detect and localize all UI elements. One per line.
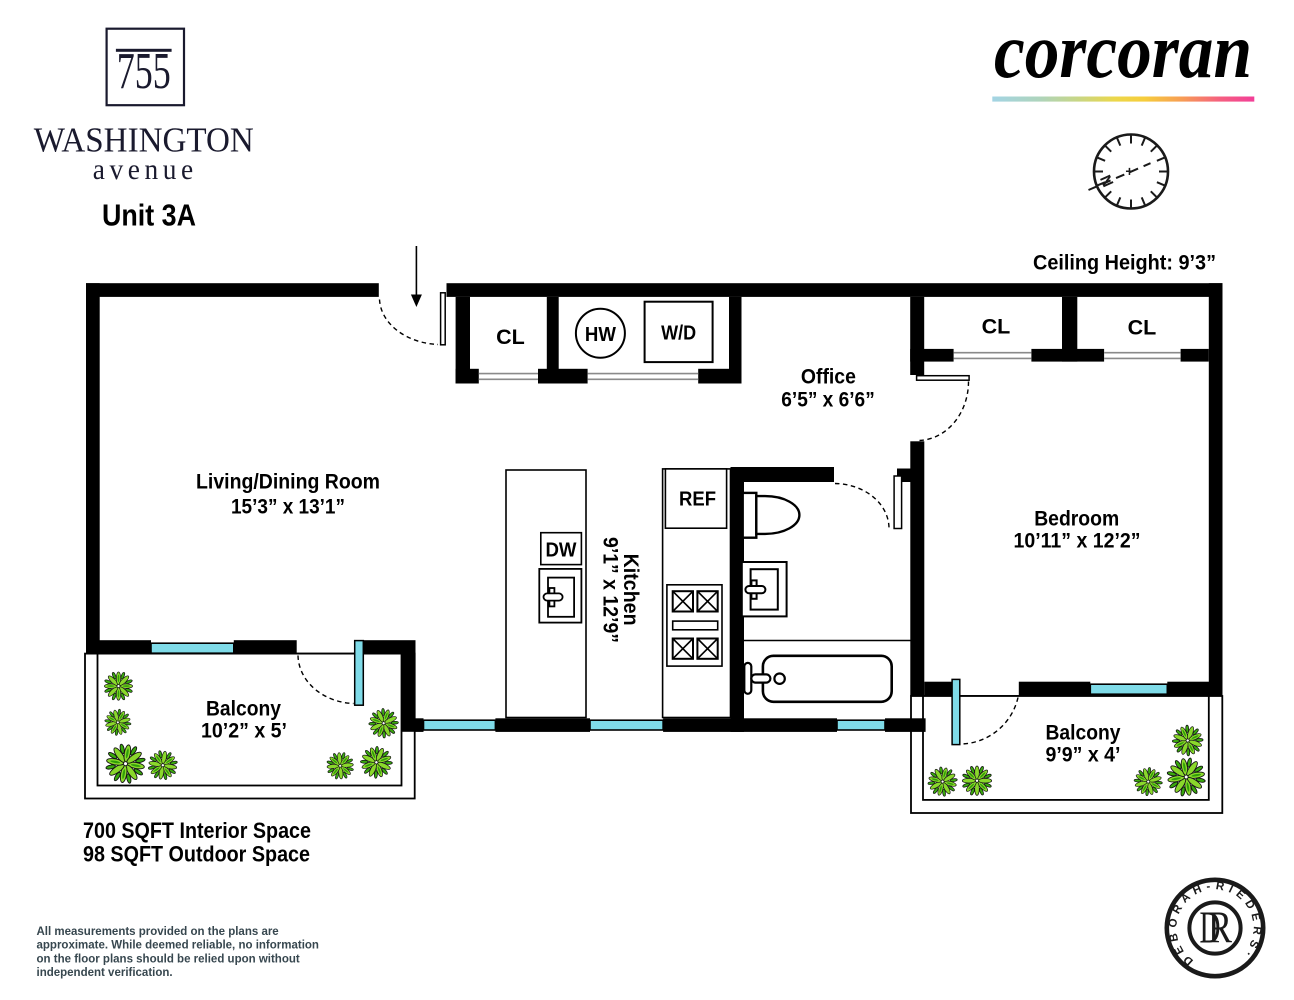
svg-text:Living/Dining Room: Living/Dining Room — [196, 470, 380, 494]
svg-text:10’2” x 5’: 10’2” x 5’ — [201, 719, 287, 743]
svg-text:All measurements provided on t: All measurements provided on the plans a… — [37, 926, 279, 938]
svg-text:CL: CL — [982, 315, 1011, 339]
svg-text:6’5” x 6’6”: 6’5” x 6’6” — [781, 388, 875, 412]
svg-text:corcoran: corcoran — [994, 7, 1252, 94]
svg-text:755: 755 — [117, 43, 171, 100]
svg-text:Balcony: Balcony — [1046, 721, 1121, 745]
svg-text:Balcony: Balcony — [206, 697, 281, 721]
svg-text:9’9” x 4’: 9’9” x 4’ — [1046, 743, 1121, 767]
svg-text:Ceiling Height: 9’3”: Ceiling Height: 9’3” — [1033, 251, 1216, 275]
svg-text:10’11” x 12’2”: 10’11” x 12’2” — [1014, 529, 1141, 553]
svg-text:REF: REF — [679, 489, 716, 511]
svg-text:W/D: W/D — [661, 322, 696, 345]
svg-text:DW: DW — [546, 539, 578, 562]
svg-text:R: R — [1208, 903, 1232, 953]
svg-text:avenue: avenue — [93, 153, 198, 186]
svg-text:9’1” x 12’9”: 9’1” x 12’9” — [599, 537, 623, 643]
svg-text:98 SQFT Outdoor Space: 98 SQFT Outdoor Space — [83, 842, 310, 867]
svg-text:Office: Office — [801, 365, 856, 389]
svg-text:on the floor plans should be r: on the floor plans should be relied upon… — [37, 953, 300, 965]
svg-text:Unit 3A: Unit 3A — [102, 198, 196, 233]
svg-text:approximate. While deemed reli: approximate. While deemed reliable, no i… — [37, 940, 319, 952]
svg-text:700 SQFT Interior Space: 700 SQFT Interior Space — [83, 818, 311, 843]
svg-text:HW: HW — [585, 323, 617, 346]
svg-text:independent verification.: independent verification. — [37, 967, 173, 979]
svg-text:+: + — [1125, 163, 1133, 179]
svg-text:15’3” x 13’1”: 15’3” x 13’1” — [231, 495, 345, 519]
svg-text:CL: CL — [1128, 316, 1157, 340]
svg-text:CL: CL — [496, 325, 525, 349]
svg-text:Bedroom: Bedroom — [1034, 507, 1119, 531]
